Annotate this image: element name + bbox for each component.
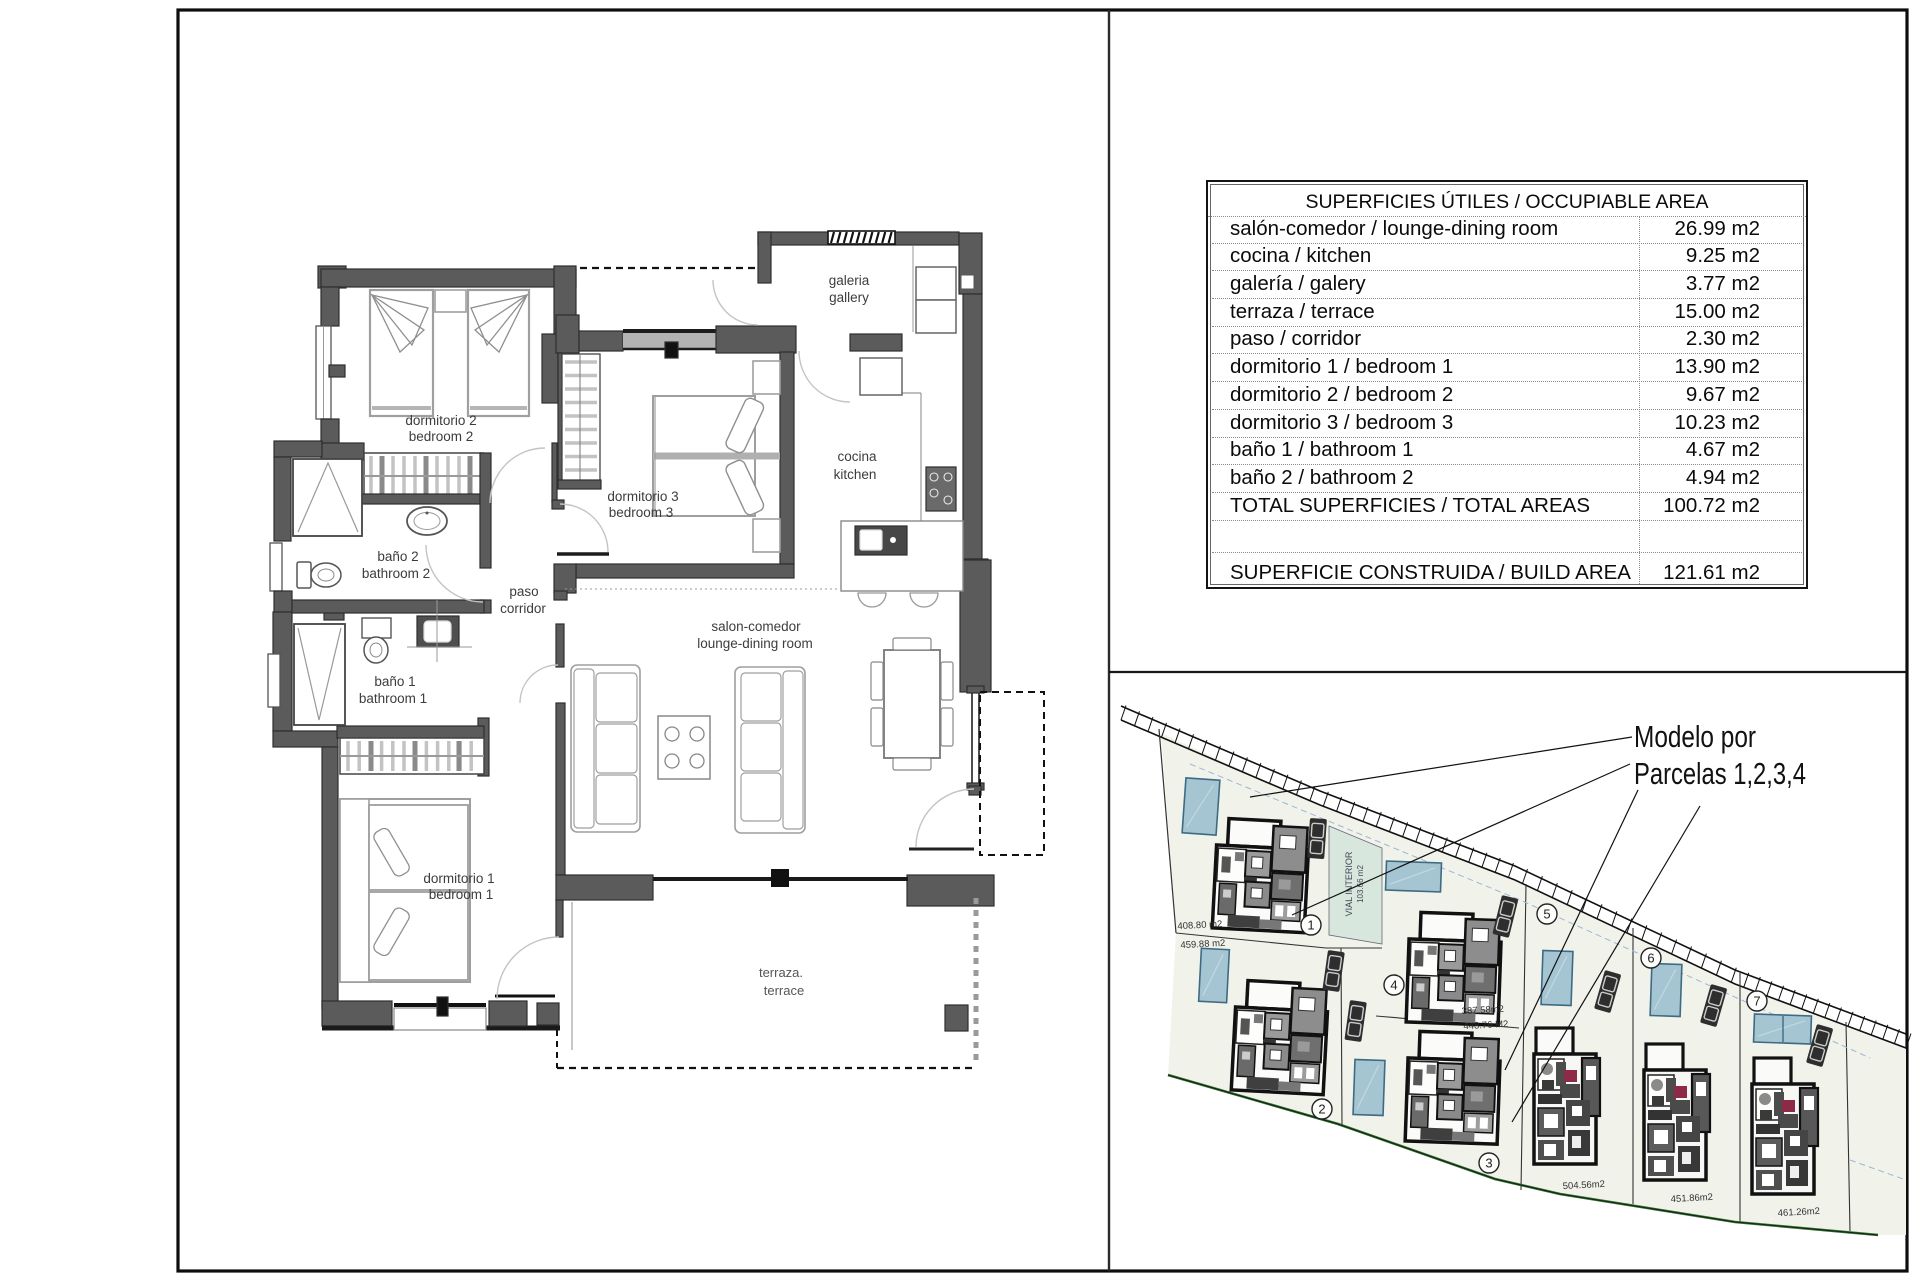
svg-text:5: 5: [1543, 907, 1550, 922]
svg-text:1: 1: [1307, 918, 1314, 933]
svg-text:dormitorio 1: dormitorio 1: [423, 871, 494, 886]
svg-text:bathroom 1: bathroom 1: [359, 691, 427, 706]
svg-text:salon-comedor: salon-comedor: [711, 619, 801, 634]
svg-text:bedroom 3: bedroom 3: [609, 505, 674, 520]
svg-text:461.26m2: 461.26m2: [1777, 1206, 1820, 1219]
svg-text:galeria: galeria: [829, 273, 870, 288]
svg-text:gallery: gallery: [829, 290, 869, 305]
svg-text:103.66 m2: 103.66 m2: [1356, 865, 1365, 903]
svg-text:4: 4: [1390, 978, 1397, 993]
svg-text:lounge-dining room: lounge-dining room: [697, 636, 813, 651]
svg-text:kitchen: kitchen: [834, 467, 877, 482]
svg-text:6: 6: [1647, 951, 1654, 966]
svg-text:baño 1: baño 1: [374, 674, 415, 689]
svg-text:baño 2: baño 2: [377, 549, 418, 564]
svg-text:paso: paso: [509, 584, 538, 599]
svg-text:7: 7: [1753, 994, 1760, 1009]
svg-text:terrace: terrace: [764, 983, 804, 998]
svg-text:3: 3: [1485, 1156, 1492, 1171]
svg-text:387.58m2: 387.58m2: [1461, 1004, 1504, 1017]
svg-text:Parcelas 1,2,3,4: Parcelas 1,2,3,4: [1634, 756, 1806, 791]
svg-text:terraza.: terraza.: [759, 965, 803, 980]
svg-text:cocina: cocina: [837, 449, 877, 464]
svg-text:bedroom 2: bedroom 2: [409, 429, 474, 444]
svg-text:Modelo por: Modelo por: [1634, 719, 1756, 754]
svg-text:corridor: corridor: [500, 601, 546, 616]
svg-text:448.76 M2: 448.76 M2: [1463, 1019, 1508, 1032]
svg-text:dormitorio 2: dormitorio 2: [405, 413, 476, 428]
svg-text:459.88 m2: 459.88 m2: [1180, 938, 1225, 951]
svg-text:bathroom 2: bathroom 2: [362, 566, 430, 581]
svg-text:VIAL INTERIOR: VIAL INTERIOR: [1344, 851, 1354, 916]
svg-text:504.56m2: 504.56m2: [1562, 1179, 1605, 1192]
svg-text:dormitorio 3: dormitorio 3: [607, 489, 678, 504]
svg-text:408.80 m2: 408.80 m2: [1177, 919, 1222, 932]
svg-text:bedroom 1: bedroom 1: [429, 887, 494, 902]
svg-text:451.86m2: 451.86m2: [1670, 1192, 1713, 1205]
svg-text:2: 2: [1318, 1102, 1325, 1117]
